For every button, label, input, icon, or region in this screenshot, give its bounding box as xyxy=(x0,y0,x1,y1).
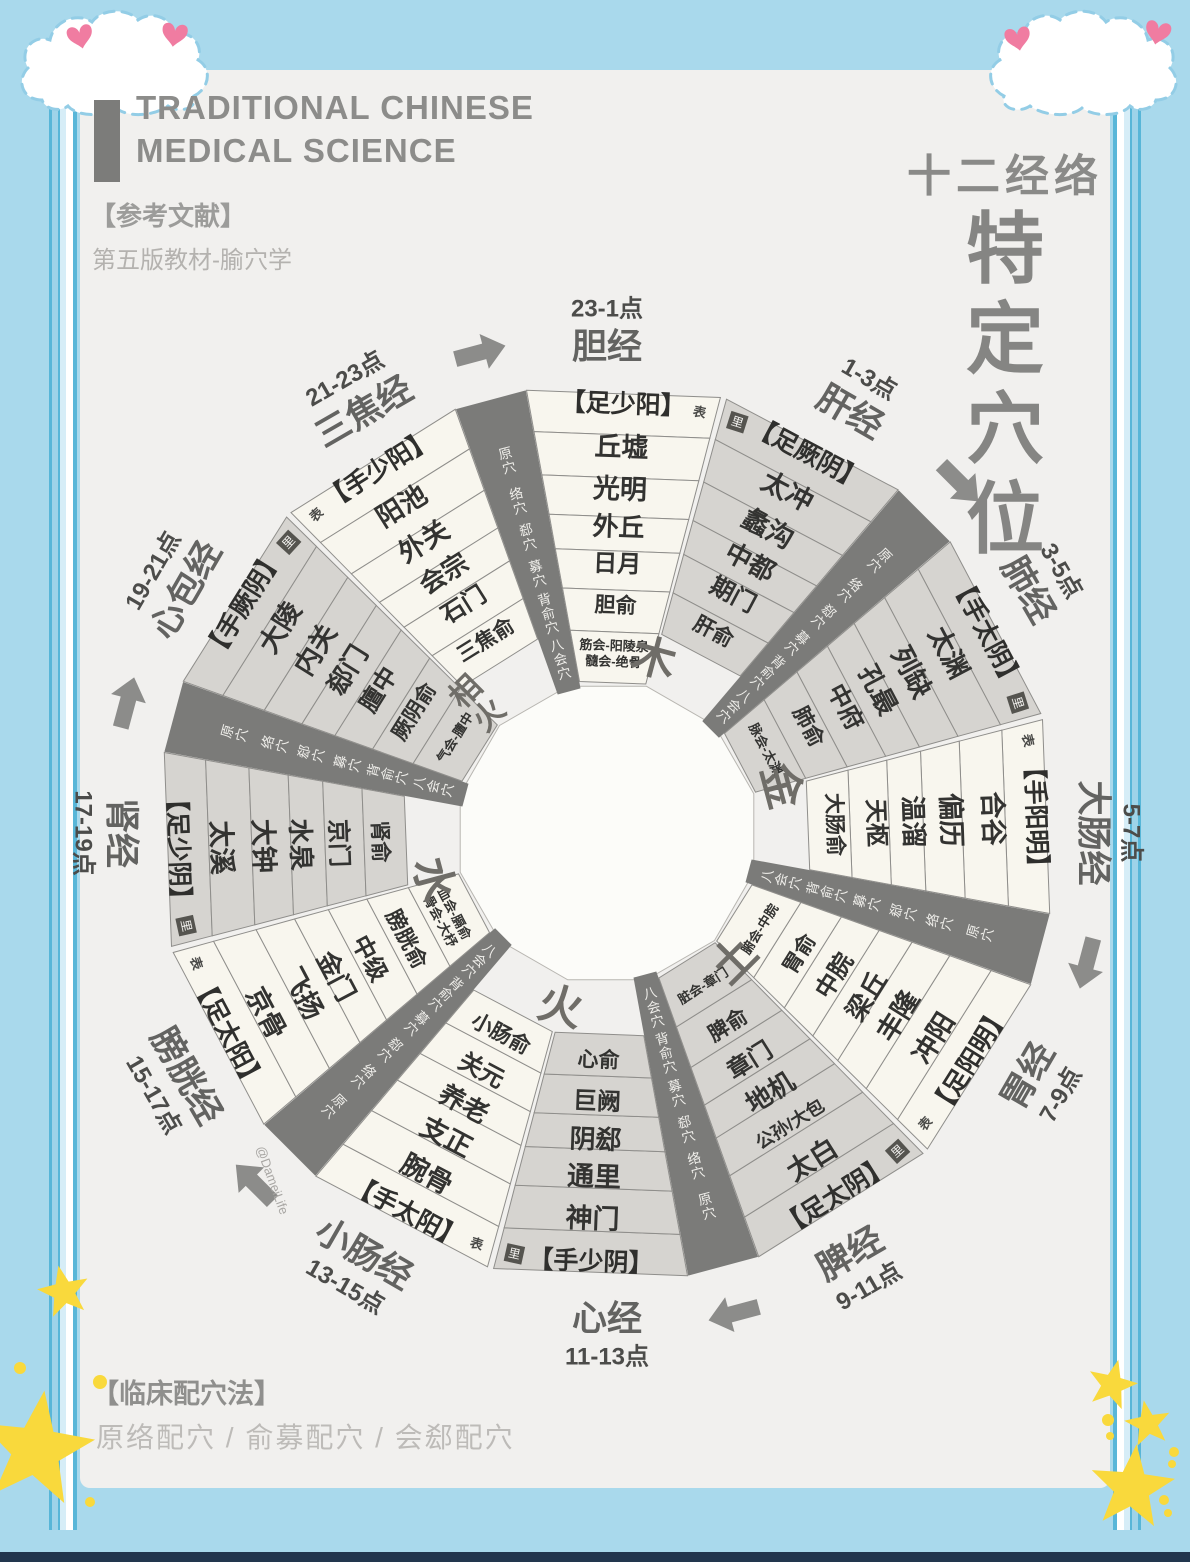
poster-subtitle: 十二经络 xyxy=(898,140,1112,204)
footer-label: 【临床配穴法】 xyxy=(92,1372,281,1411)
page-title-en: TRADITIONAL CHINESE MEDICAL SCIENCE xyxy=(136,86,534,172)
heart-icon xyxy=(1143,19,1173,47)
right-border-stripes xyxy=(1110,60,1144,1530)
reference-text: 第五版教材-腧穴学 xyxy=(92,240,292,275)
reference-label: 【参考文献】 xyxy=(90,196,246,233)
heart-icon xyxy=(1004,26,1033,53)
footer-text: 原络配穴 / 俞募配穴 / 会郄配穴 xyxy=(96,1416,515,1456)
heart-icon xyxy=(160,22,188,48)
star-dot xyxy=(1164,1509,1172,1517)
star-dot xyxy=(1169,1447,1179,1457)
star-dot xyxy=(1159,1495,1169,1505)
star-dot xyxy=(1168,1460,1176,1468)
title-accent-bar xyxy=(94,100,120,182)
poster-title: 十二经络 特定 穴位 xyxy=(898,140,1112,564)
poster-title-line2: 穴位 xyxy=(922,384,1112,564)
tcm-meridian-poster: { "colors": { "background_blue": "#a9d9e… xyxy=(0,0,1190,1562)
heart-icon xyxy=(66,23,96,51)
page-title-en-line1: TRADITIONAL CHINESE xyxy=(136,86,534,129)
left-border-stripes xyxy=(46,60,80,1530)
page-title-en-line2: MEDICAL SCIENCE xyxy=(136,129,534,172)
bottom-navy-line xyxy=(0,1552,1190,1562)
poster-title-line1: 特定 xyxy=(922,204,1112,384)
star-dot xyxy=(14,1362,26,1374)
star-dot xyxy=(85,1497,95,1507)
